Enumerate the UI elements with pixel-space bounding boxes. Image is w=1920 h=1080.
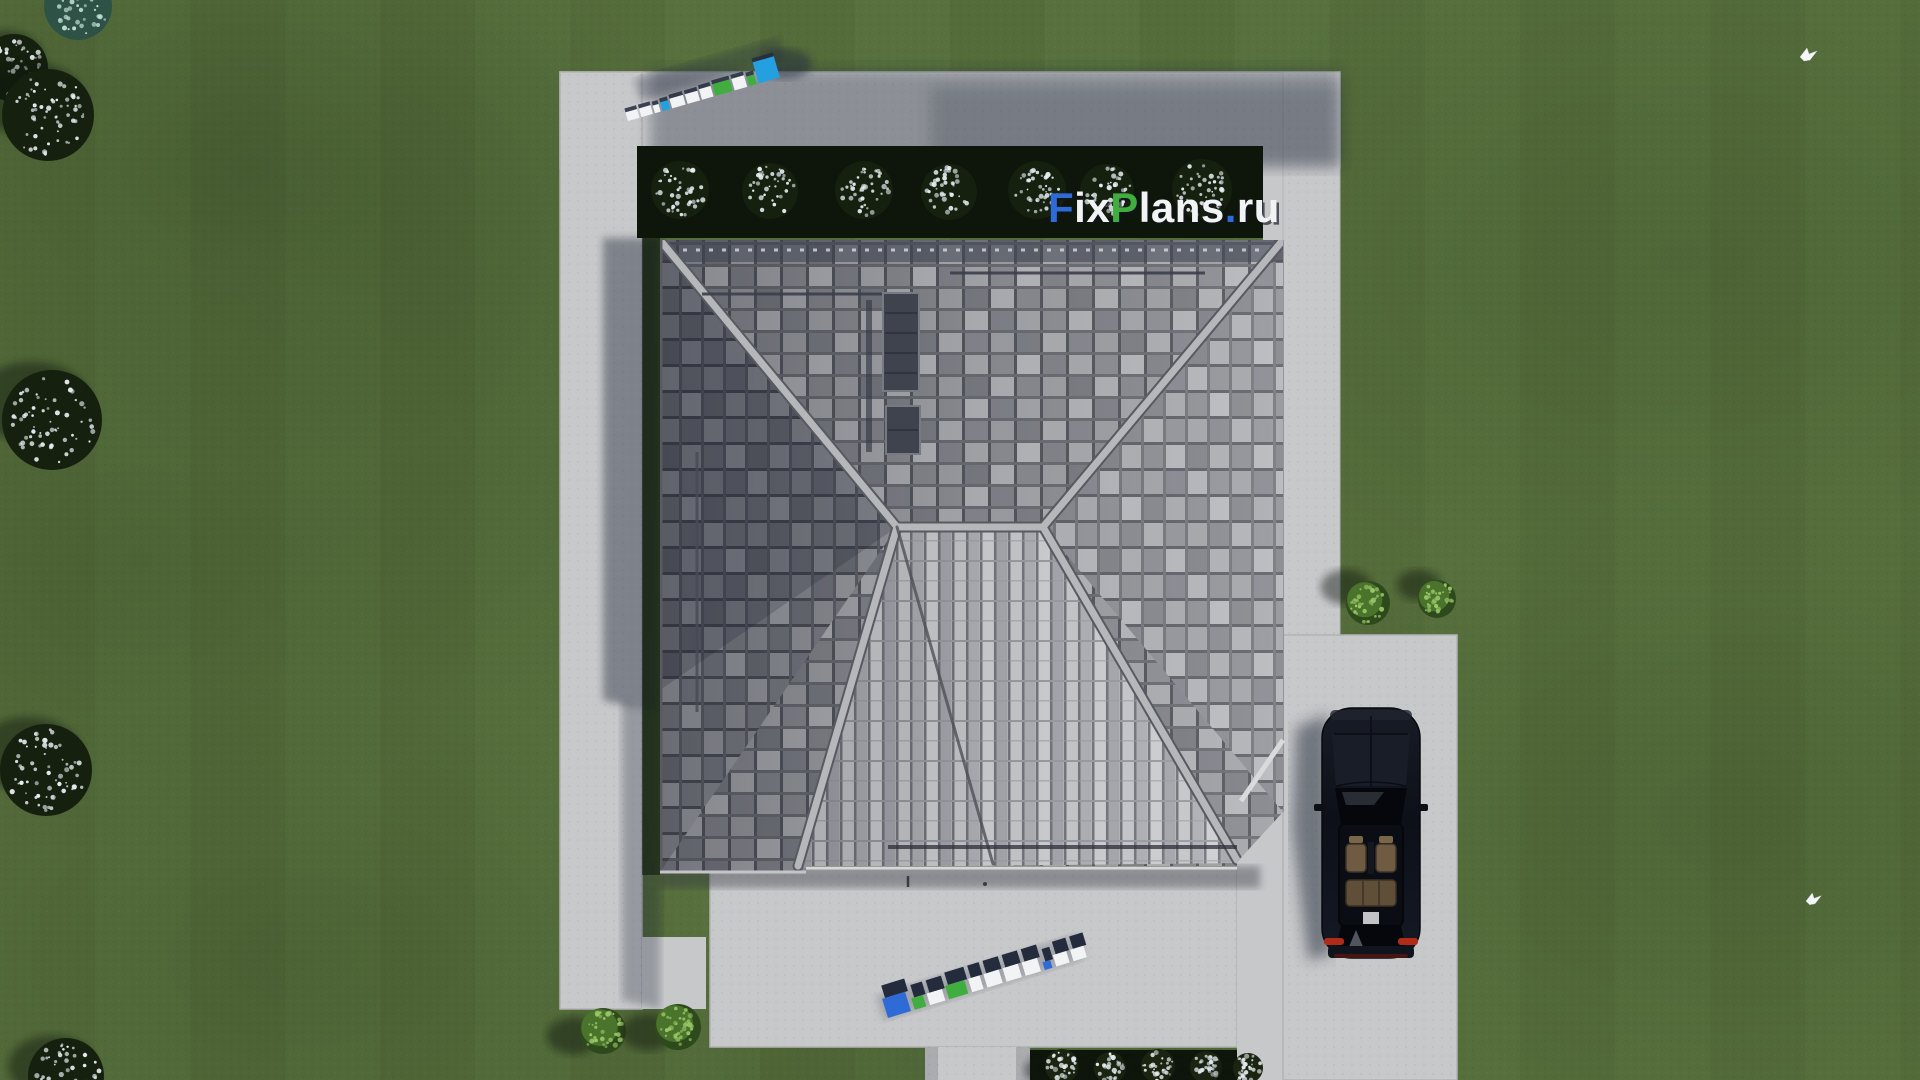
car [1292,708,1428,960]
flower-bush [921,164,977,220]
watermark-text: FixPlans.ru FixPlans.ru [1048,184,1282,234]
svg-text:FixPlans.ru: FixPlans.ru [1048,184,1280,231]
flower-bush [835,161,893,219]
garden-path [925,1047,1030,1080]
skylight [886,406,920,454]
scene-render: FixPlans.ru FixPlans.ru [0,0,1920,1080]
mirror-right [1417,804,1428,811]
house-roof [660,240,1283,872]
car-glass-roof [1339,824,1403,926]
skylight [883,293,919,391]
aerial-render-stage: FixPlans.ru FixPlans.ru [0,0,1920,1080]
flower-bush [651,161,709,219]
taillight-right [1398,938,1418,945]
mirror-left [1314,804,1325,811]
flower-bush [742,163,798,219]
taillight-left [1324,938,1344,945]
